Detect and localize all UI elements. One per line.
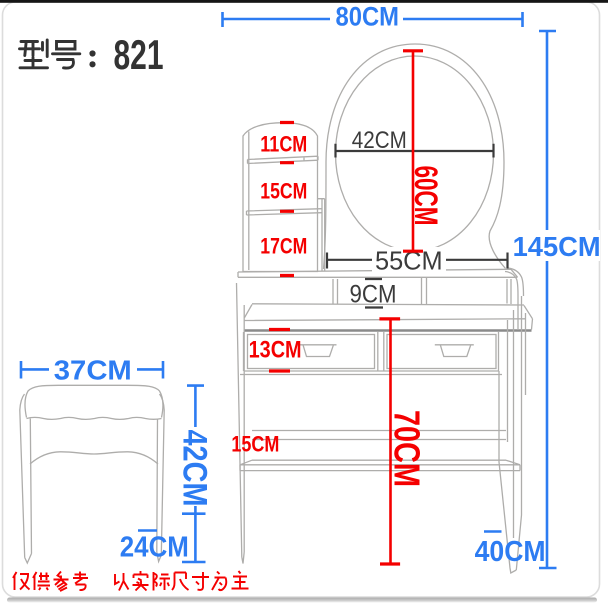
svg-text:80CM: 80CM bbox=[336, 2, 400, 32]
svg-text:37CM: 37CM bbox=[54, 355, 132, 386]
svg-text:42CM: 42CM bbox=[176, 430, 214, 507]
svg-text:15CM: 15CM bbox=[231, 432, 279, 457]
svg-text:40CM: 40CM bbox=[475, 536, 546, 568]
svg-text:11CM: 11CM bbox=[260, 132, 307, 157]
svg-text:145CM: 145CM bbox=[513, 231, 601, 262]
svg-text:9CM: 9CM bbox=[350, 281, 397, 309]
svg-text:70CM: 70CM bbox=[387, 410, 428, 487]
svg-text:42CM: 42CM bbox=[352, 127, 407, 154]
svg-text:60CM: 60CM bbox=[408, 166, 444, 226]
svg-text:13CM: 13CM bbox=[249, 337, 302, 364]
svg-text:821: 821 bbox=[114, 31, 164, 78]
svg-text:24CM: 24CM bbox=[120, 531, 189, 563]
svg-text:17CM: 17CM bbox=[260, 234, 307, 259]
svg-text:15CM: 15CM bbox=[260, 179, 307, 204]
